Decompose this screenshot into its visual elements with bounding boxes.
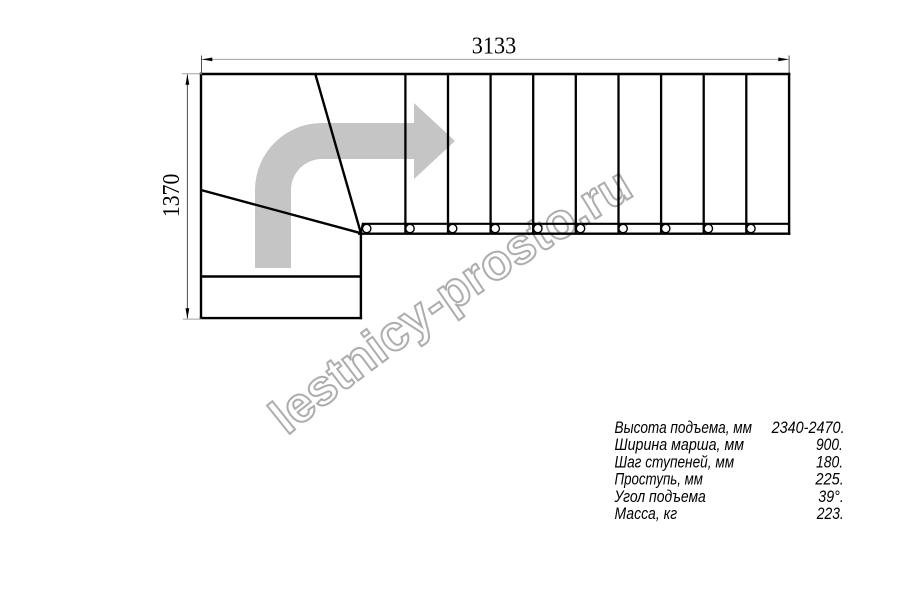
svg-text:1370: 1370 [158, 174, 185, 218]
svg-text:225.: 225. [815, 471, 844, 489]
svg-text:Шаг ступеней, мм: Шаг ступеней, мм [615, 453, 735, 471]
svg-text:3133: 3133 [472, 34, 517, 60]
svg-text:lestnicy-prosto.ru: lestnicy-prosto.ru [259, 156, 641, 445]
svg-text:2340-2470.: 2340-2470. [771, 419, 845, 437]
svg-text:900.: 900. [816, 436, 843, 454]
svg-text:39°.: 39°. [818, 488, 844, 506]
svg-text:Угол подъема: Угол подъема [614, 488, 706, 506]
svg-text:Ширина марша, мм: Ширина марша, мм [615, 436, 745, 454]
svg-text:223.: 223. [816, 505, 844, 523]
svg-text:180.: 180. [816, 453, 843, 471]
svg-text:Масса, кг: Масса, кг [615, 505, 678, 523]
svg-text:Проступь, мм: Проступь, мм [615, 471, 703, 489]
svg-text:Высота подъема, мм: Высота подъема, мм [615, 419, 752, 437]
